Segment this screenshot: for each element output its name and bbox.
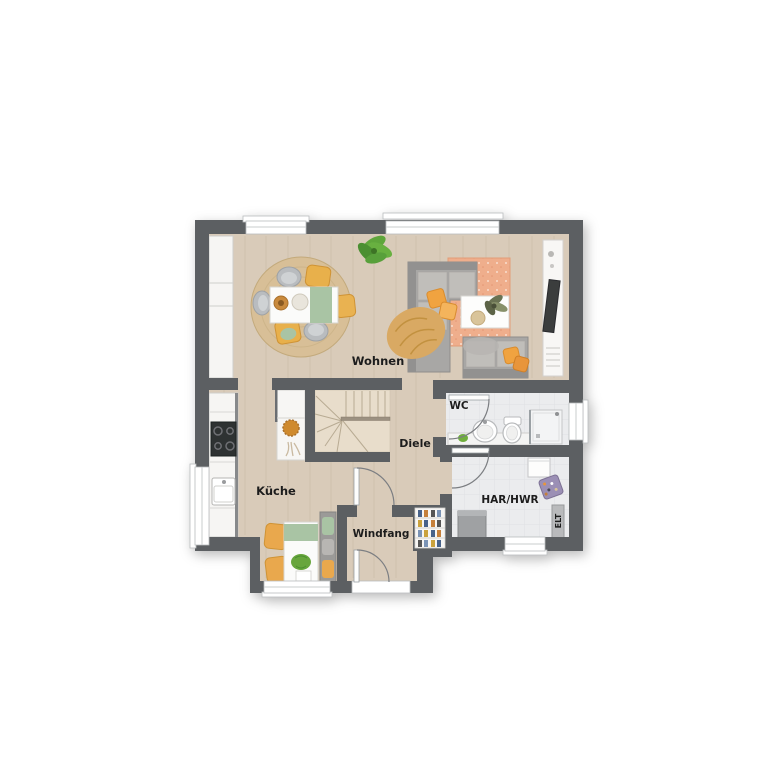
- label-diele: Diele: [399, 437, 431, 450]
- window-bay-kitchen: [262, 581, 332, 597]
- wall-living-wc: [433, 380, 583, 393]
- shower: [530, 410, 562, 444]
- shoe-shelf: [415, 508, 445, 548]
- notepad-decor: [296, 571, 311, 581]
- floor-plan: Wohnen Küche Diele Windfang WC HAR/HWR E…: [190, 213, 588, 597]
- tv-sideboard: [543, 240, 563, 376]
- staircase: [315, 390, 390, 452]
- wreath-decor: [283, 420, 299, 436]
- label-windfang: Windfang: [353, 528, 410, 540]
- orange-pillow: [512, 355, 529, 372]
- dryer-appliance: [528, 458, 550, 477]
- wall-stair-bottom: [305, 452, 390, 462]
- kitchen-bench: [320, 512, 336, 583]
- stair-niche-shelf: [275, 390, 305, 460]
- sofa-two-seater: [463, 337, 530, 378]
- washing-machine: [458, 511, 486, 541]
- wall-windfang-left: [337, 505, 347, 593]
- kitchen-sink: [212, 478, 235, 505]
- label-kueche: Küche: [256, 484, 296, 498]
- wall-windfang-top-right: [392, 505, 413, 517]
- dining-chair-gray-bottom: [304, 321, 328, 341]
- wall-living-kitchen: [272, 378, 402, 390]
- windfang-door-leaf: [354, 468, 359, 505]
- flower-decor: [292, 294, 308, 310]
- window-top-right: [383, 213, 503, 234]
- label-wohnen: Wohnen: [352, 354, 405, 368]
- stair-rail: [341, 417, 390, 421]
- kitchen-counter: [209, 393, 238, 537]
- dining-table: [270, 287, 338, 323]
- wc-sink: [473, 420, 497, 442]
- wall-stair-left: [305, 390, 315, 462]
- floorplan-svg: Wohnen Küche Diele Windfang WC HAR/HWR E…: [0, 0, 775, 775]
- label-wc: WC: [449, 400, 469, 412]
- window-top-left: [243, 216, 309, 234]
- wall-windfang-right: [417, 549, 433, 593]
- wall-diele-har-top: [440, 457, 452, 462]
- dining-chair-gray-topleft: [277, 267, 301, 287]
- kitchen-table: [284, 522, 318, 583]
- floorplan-canvas: Wohnen Küche Diele Windfang WC HAR/HWR E…: [0, 0, 775, 775]
- wall-living-kitchen-stub: [209, 378, 238, 390]
- window-left-kitchen: [190, 464, 209, 548]
- coffee-table: [461, 293, 509, 328]
- tall-cabinet: [209, 236, 233, 378]
- wall-diele-wc-bottom: [433, 437, 446, 457]
- toilet: [503, 417, 521, 443]
- dining-chair-gray-left: [253, 291, 271, 315]
- cooktop: [211, 422, 236, 456]
- gray-blanket: [463, 337, 499, 355]
- entry-door-leaf: [354, 550, 359, 582]
- har-door-leaf: [452, 448, 489, 453]
- label-har-hwr: HAR/HWR: [481, 494, 538, 506]
- window-right-wc: [569, 400, 588, 443]
- wall-diele-wc-top: [433, 393, 446, 399]
- jute-tray: [471, 311, 485, 325]
- wall-corner-step: [433, 551, 452, 557]
- label-elt: ELT: [554, 513, 563, 528]
- dining-chair-yellow-top: [305, 264, 332, 288]
- wall-windfang-top-left: [337, 505, 357, 517]
- window-bottom-har: [503, 537, 547, 555]
